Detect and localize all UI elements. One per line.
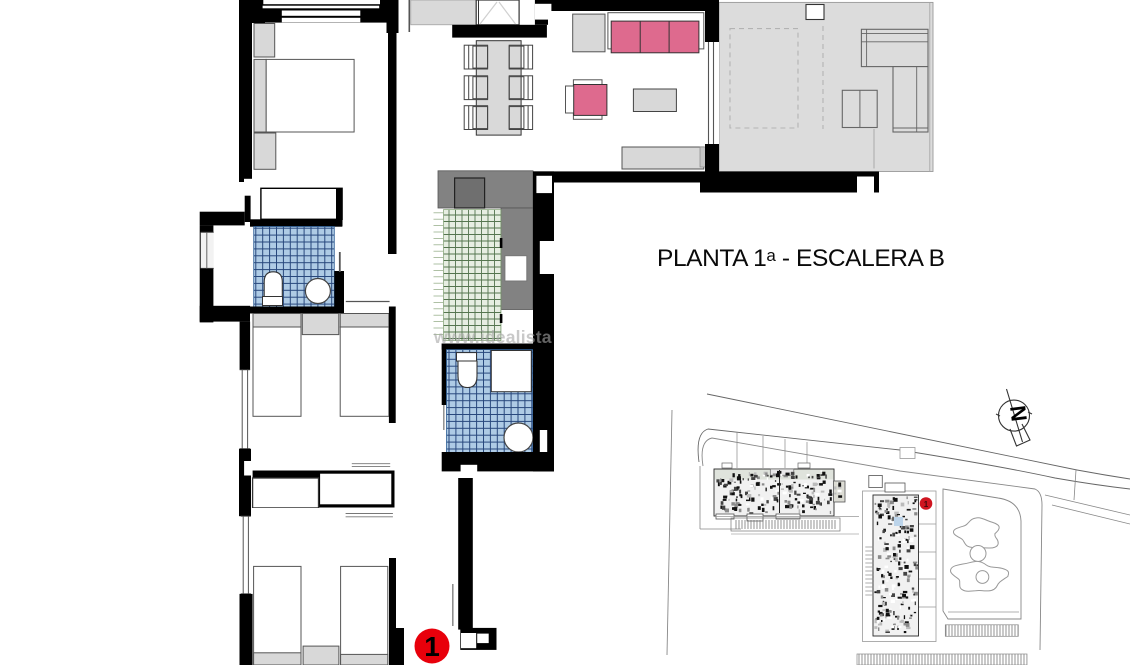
svg-text:www.idealista: www.idealista bbox=[433, 327, 552, 347]
svg-text:1: 1 bbox=[924, 500, 929, 509]
svg-text:N: N bbox=[1005, 404, 1032, 423]
svg-text:PLANTA 1a - ESCALERA B: PLANTA 1a - ESCALERA B bbox=[657, 245, 945, 272]
svg-text:1: 1 bbox=[424, 631, 440, 662]
